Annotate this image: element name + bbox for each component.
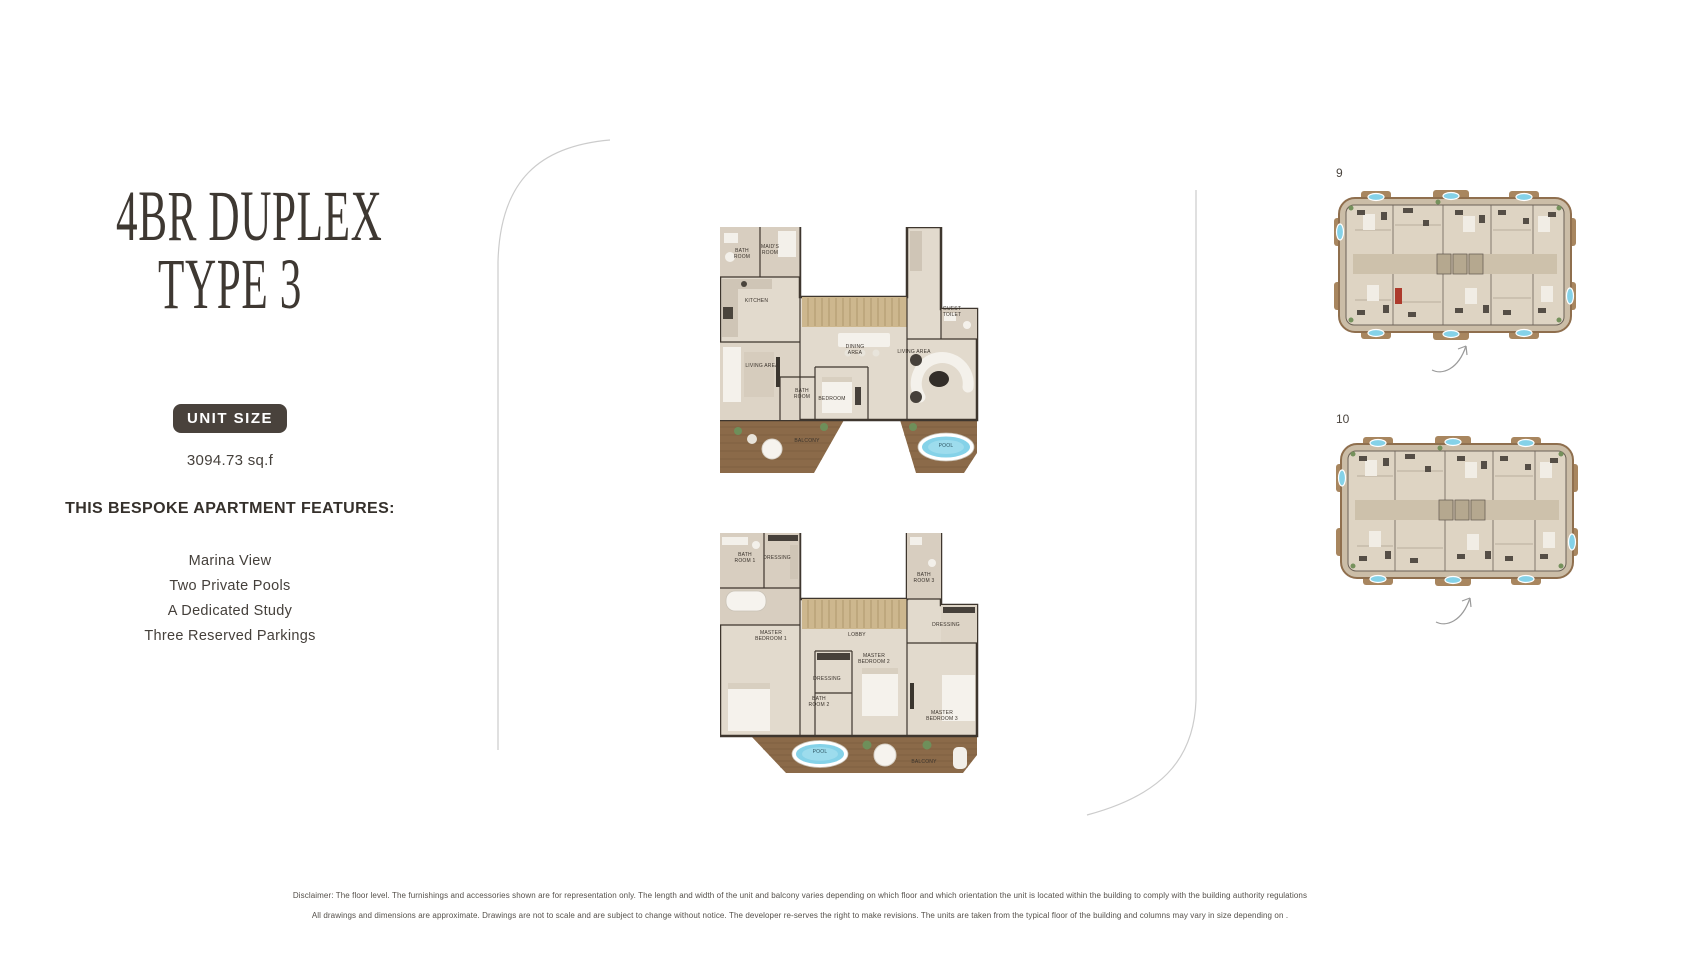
room-label-dressing-2: DRESSING [812,677,842,683]
key-plan-9-image [1333,190,1577,345]
room-label-dressing-3: DRESSING [931,623,961,629]
upper-floor-plan-image: BATH ROOM MAID'S ROOM KITCHEN LIVING ARE… [720,227,982,473]
room-label-lobby: LOBBY [836,633,878,639]
disclaimer-line-1: Disclaimer: The floor level. The furnish… [270,886,1330,906]
room-label-living-area-left: LIVING AREA [736,364,788,370]
unit-size-badge: UNIT SIZE [173,404,287,433]
room-label-bedroom: BEDROOM [811,397,853,403]
room-label-bath-room: BATH ROOM [728,249,756,260]
lower-floor-plan-image: BATH ROOM 1 DRESSING MASTER BEDROOM 1 LO… [720,533,982,773]
features-list: Marina View Two Private Pools A Dedicate… [40,549,420,649]
disclaimer-line-2: All drawings and dimensions are approxim… [270,906,1330,926]
key-plan-10-label: 10 [1336,412,1349,426]
room-label-master-bedroom-2: MASTER BEDROOM 2 [852,654,896,665]
room-label-pool: POOL [926,444,966,450]
room-label-balcony: BALCONY [786,439,828,445]
page-title: 4BR DUPLEX TYPE 3 [116,182,344,318]
features-heading: THIS BESPOKE APARTMENT FEATURES: [0,500,460,518]
feature-item: A Dedicated Study [40,599,420,624]
staircase-lower [802,599,907,629]
balcony-deck-lower [751,736,977,773]
room-label-bath-room-3: BATH ROOM 3 [910,573,938,584]
feature-item: Two Private Pools [40,574,420,599]
room-label-guest-toilet: GUEST TOILET [938,307,966,318]
key-plan-9-drawing [1333,190,1577,340]
room-label-master-bedroom-1: MASTER BEDROOM 1 [749,631,793,642]
room-label-kitchen: KITCHEN [734,299,779,305]
feature-item: Three Reserved Parkings [40,624,420,649]
staircase [802,297,907,327]
key-plan-10-drawing [1335,434,1579,588]
room-label-living-area-right: LIVING AREA [888,350,940,356]
room-label-master-bedroom-3: MASTER BEDROOM 3 [920,711,964,722]
arrow-icon [1432,586,1484,628]
feature-item: Marina View [40,549,420,574]
arrow-icon [1428,334,1480,376]
room-label-maids-room: MAID'S ROOM [756,245,784,256]
title-line-1: 4BR DUPLEX [116,182,344,250]
room-label-bath-room-1: BATH ROOM 1 [731,553,759,564]
room-label-pool-lower: POOL [800,750,840,756]
title-line-2: TYPE 3 [116,250,344,318]
key-plan-9-label: 9 [1336,166,1343,180]
unit-size-value: 3094.73 sq.f [40,452,420,469]
room-label-balcony-lower: BALCONY [903,760,945,766]
room-label-bath-room-2: BATH ROOM 2 [805,697,833,708]
lower-floor-plan-drawing [720,533,982,773]
disclaimer: Disclaimer: The floor level. The furnish… [270,886,1330,926]
key-plan-10-image [1335,434,1579,593]
brochure-page: 4BR DUPLEX TYPE 3 UNIT SIZE 3094.73 sq.f… [0,0,1700,957]
room-label-dressing-1: DRESSING [762,556,792,562]
room-label-dining-area: DINING AREA [838,345,872,356]
